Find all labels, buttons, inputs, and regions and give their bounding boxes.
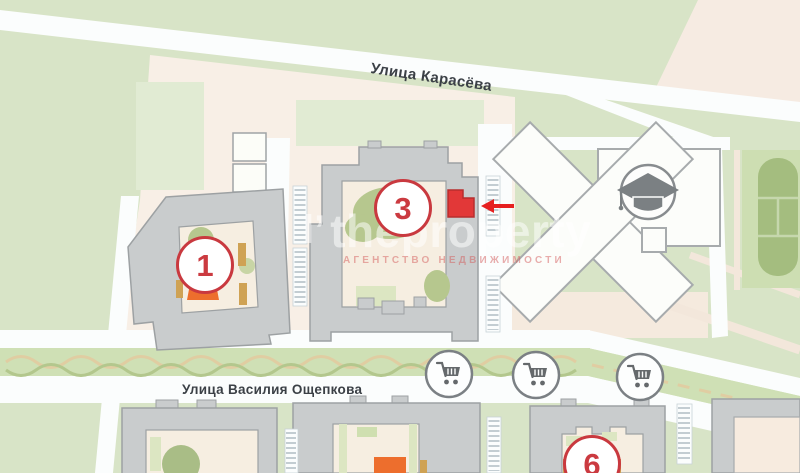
graduation-cap-tassel-end (619, 206, 624, 211)
building-3-roof-bump (368, 141, 381, 148)
cart-wheel (644, 383, 649, 388)
service-building-1 (233, 133, 266, 161)
graduation-cap-base (633, 197, 663, 212)
cart-wheel (531, 381, 536, 386)
cart-wheel (444, 380, 449, 385)
median-straight (0, 348, 590, 376)
tree (424, 270, 450, 302)
cart-wheel (540, 381, 545, 386)
zone-green-patch-1 (136, 82, 204, 190)
bench (239, 283, 247, 305)
map: l’ theproperty АГЕНТСТВО НЕДВИЖИМОСТИ Ул… (0, 0, 800, 473)
courtyard (734, 417, 800, 473)
building-marker-3[interactable]: 3 (374, 179, 432, 237)
shopping-cart-icon-3[interactable] (617, 354, 663, 400)
building-bottom-left (122, 400, 277, 473)
school-annex-small (642, 228, 666, 252)
building-3-roof-bump (424, 141, 437, 148)
parking-strip (487, 417, 501, 473)
building-bottom-right (712, 399, 800, 473)
building-bottom-middle (293, 396, 480, 473)
sports-field (742, 150, 800, 288)
parking-strip (677, 404, 692, 464)
cart-wheel (453, 380, 458, 385)
parking-strip (293, 248, 307, 306)
parking-strip (293, 186, 307, 244)
lawn-pale (150, 437, 161, 471)
lobby-block (382, 301, 404, 314)
service-building-2 (233, 164, 266, 192)
building-3 (310, 141, 478, 341)
lawn-pale (357, 427, 377, 437)
shopping-cart-icon-2[interactable] (513, 352, 559, 398)
lawn-pale (339, 424, 347, 473)
parking-strip (486, 276, 500, 332)
lobby-block (414, 297, 426, 307)
lawn-pale (409, 424, 417, 473)
building-marker-1[interactable]: 1 (176, 236, 234, 294)
parking-strip (285, 429, 298, 473)
school-building (493, 122, 720, 321)
road-oshchepkova-upper (0, 330, 590, 348)
bench (420, 460, 427, 473)
bench (238, 243, 246, 266)
playground-orange (374, 457, 406, 473)
lobby-block (358, 298, 374, 309)
street-label-oshchepkova: Улица Василия Ощепкова (182, 382, 362, 397)
shopping-cart-icon-1[interactable] (426, 351, 472, 397)
zone-green-patch-2 (296, 100, 484, 146)
cart-wheel (635, 383, 640, 388)
